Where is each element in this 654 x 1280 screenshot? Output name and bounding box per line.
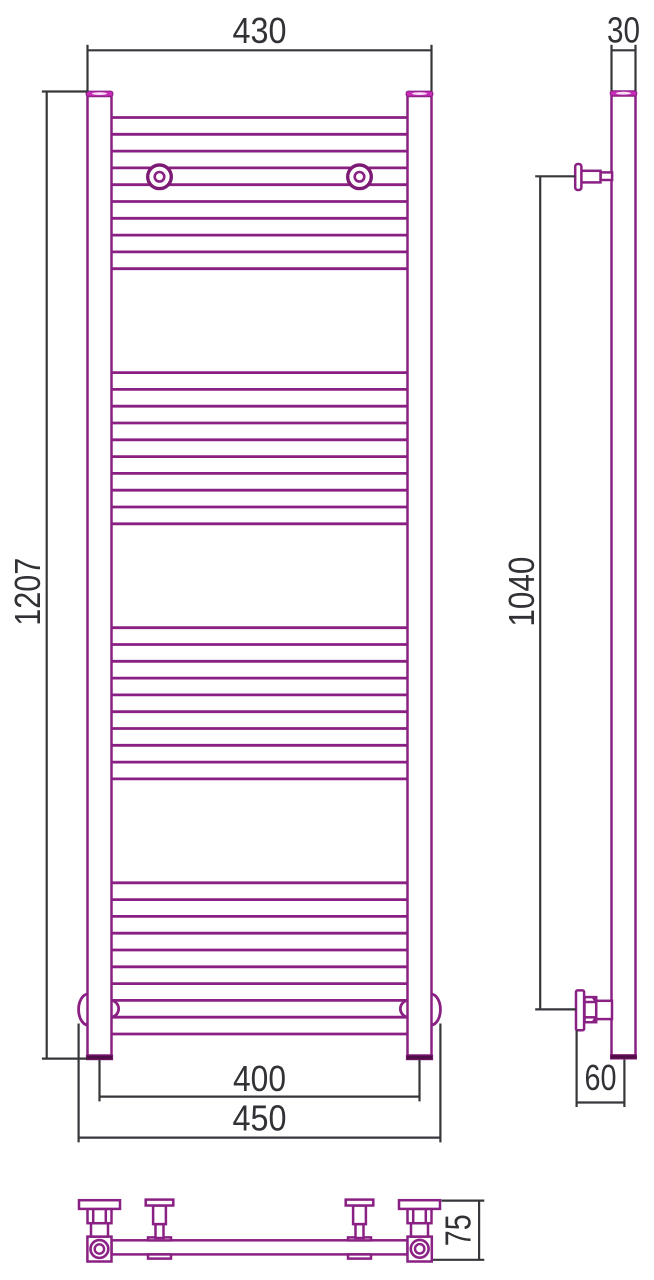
- svg-text:400: 400: [233, 1058, 286, 1099]
- svg-text:1207: 1207: [7, 558, 48, 626]
- svg-text:1040: 1040: [501, 557, 542, 627]
- svg-text:30: 30: [607, 10, 640, 51]
- svg-text:60: 60: [585, 1057, 617, 1098]
- svg-text:75: 75: [438, 1214, 479, 1246]
- svg-text:450: 450: [233, 1098, 287, 1139]
- svg-text:430: 430: [233, 10, 287, 51]
